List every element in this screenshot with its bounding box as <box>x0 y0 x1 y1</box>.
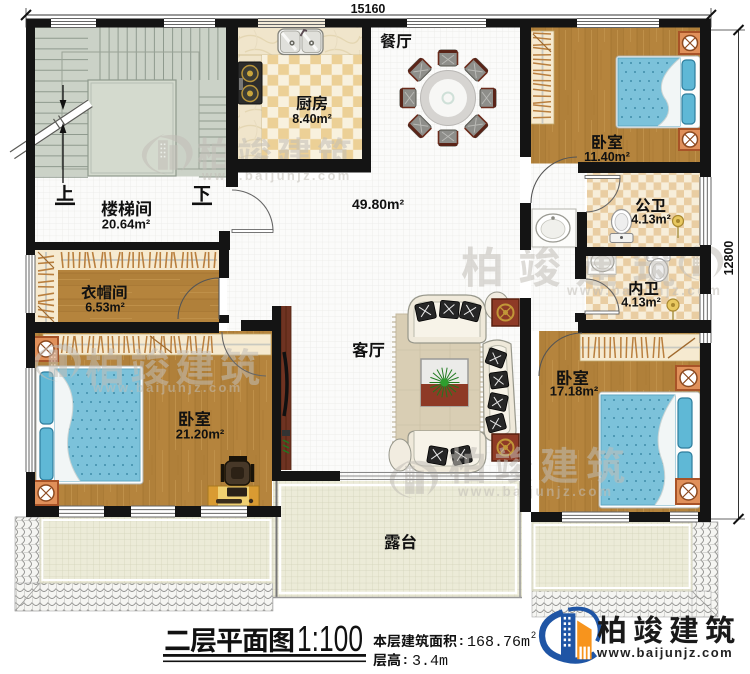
svg-text:4.13m²: 4.13m² <box>631 213 671 227</box>
svg-text:www.baijunjz.com: www.baijunjz.com <box>457 484 613 499</box>
svg-text:15160: 15160 <box>351 2 386 16</box>
svg-text:49.80m²: 49.80m² <box>352 196 404 212</box>
svg-text:www.baijunjz.com: www.baijunjz.com <box>92 380 243 395</box>
svg-text:17.18m²: 17.18m² <box>550 384 599 399</box>
svg-text:2: 2 <box>531 630 536 640</box>
svg-text:3.4m: 3.4m <box>412 653 448 670</box>
svg-text:4.13m²: 4.13m² <box>621 296 661 310</box>
svg-text:21.20m²: 21.20m² <box>176 427 225 442</box>
svg-text:12800: 12800 <box>722 241 736 276</box>
svg-text:www.baijunjz.com: www.baijunjz.com <box>596 645 733 660</box>
svg-text:1:100: 1:100 <box>297 618 363 659</box>
svg-text:168.76m: 168.76m <box>467 634 530 651</box>
svg-text::: : <box>403 651 408 667</box>
svg-text:11.40m²: 11.40m² <box>584 150 630 164</box>
svg-text::: : <box>459 632 464 648</box>
svg-text:6.53m²: 6.53m² <box>85 301 125 315</box>
svg-text:20.64m²: 20.64m² <box>102 217 151 232</box>
svg-text:8.40m²: 8.40m² <box>292 112 332 126</box>
